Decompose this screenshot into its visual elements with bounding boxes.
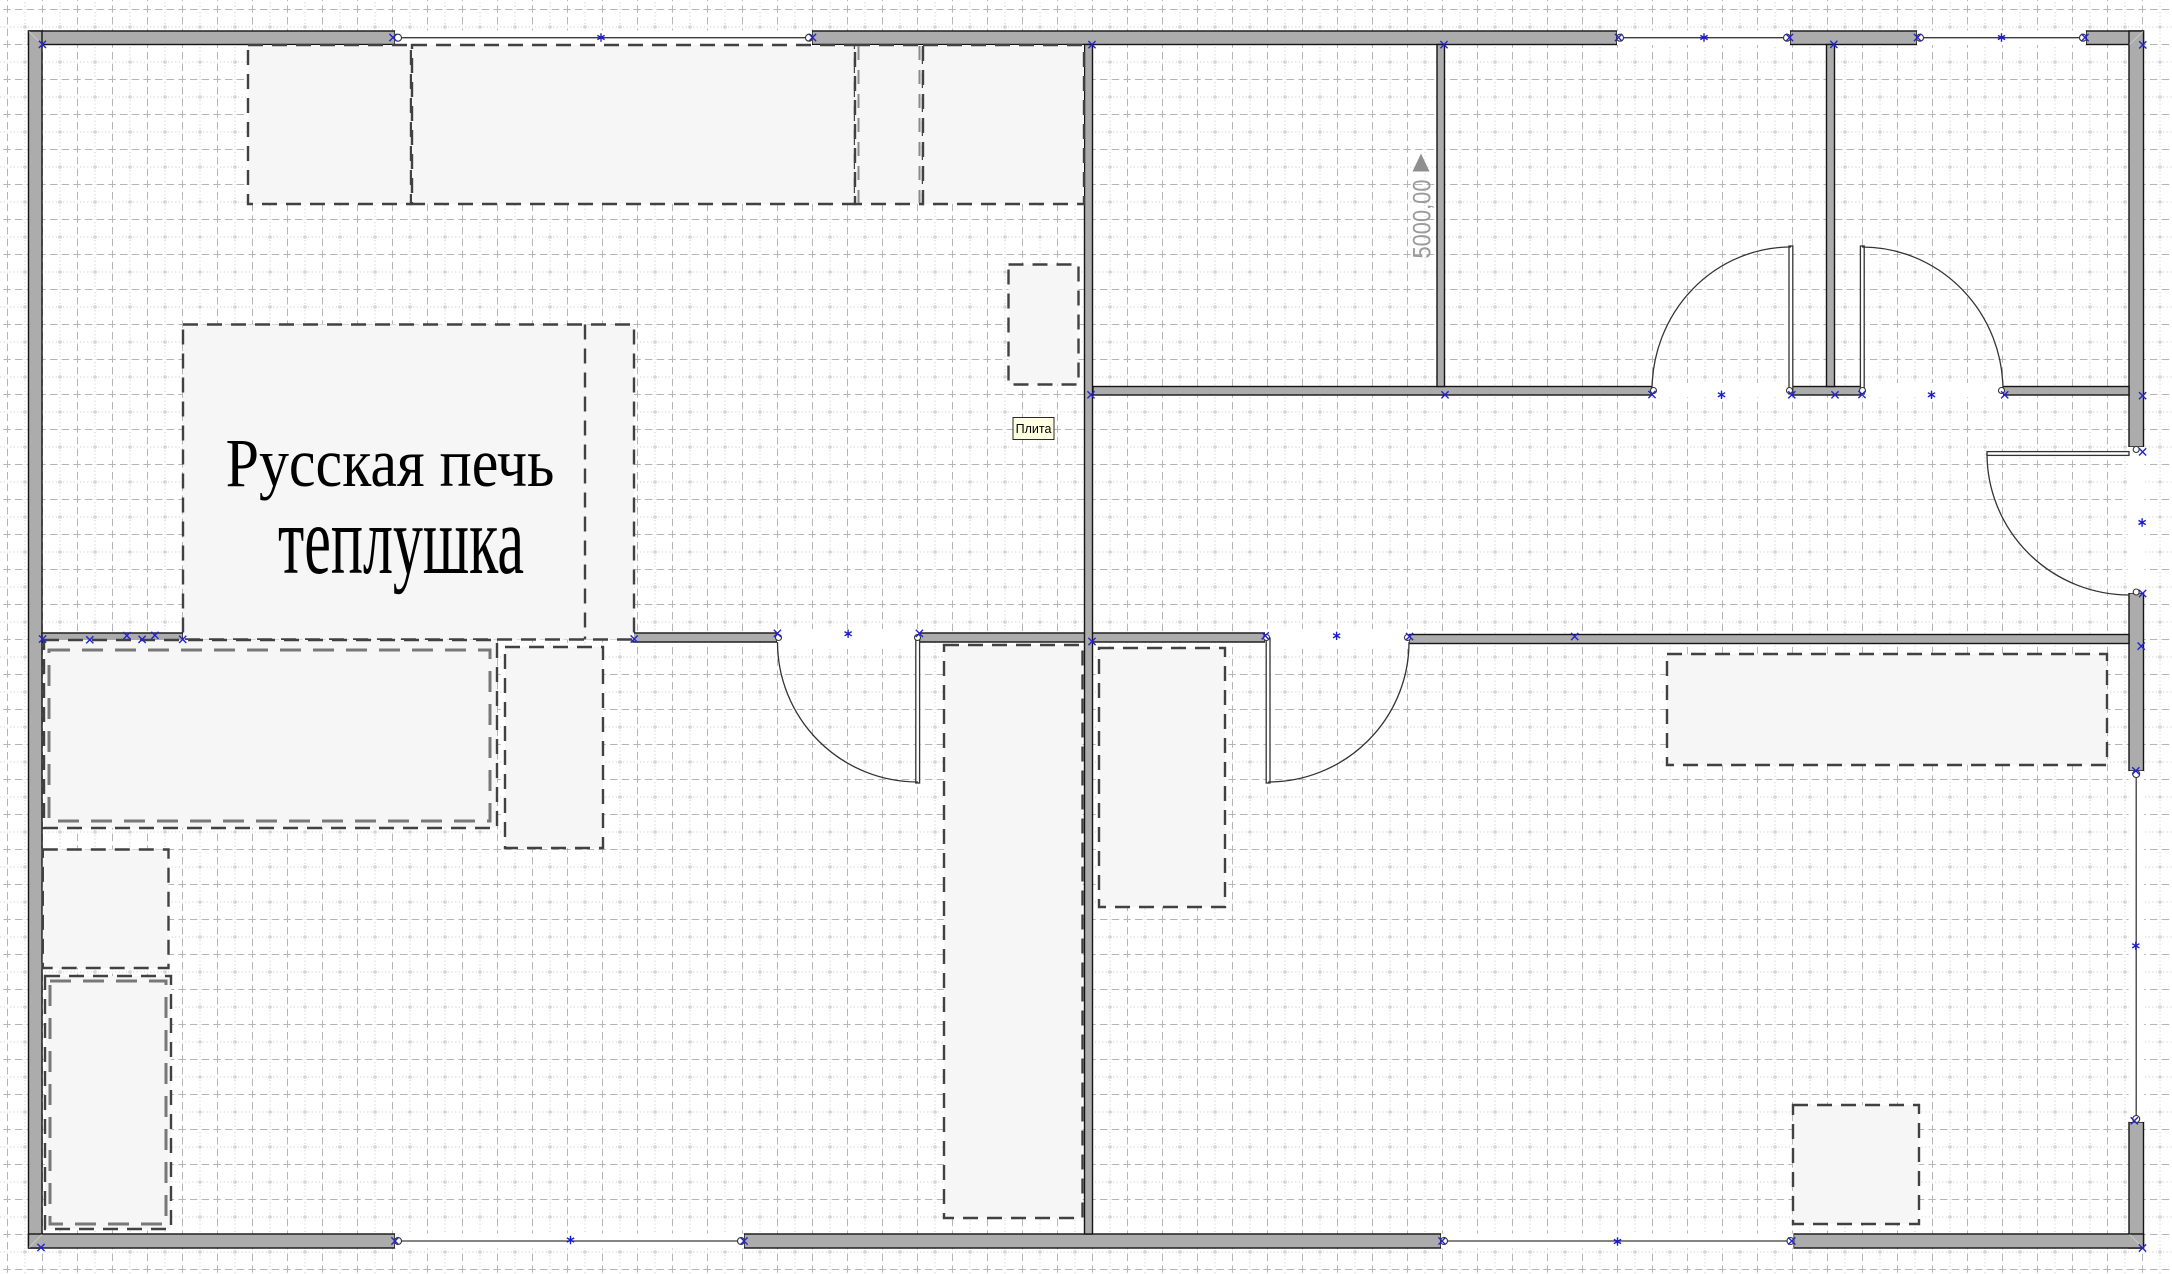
svg-text:5000,00: 5000,00	[1409, 180, 1437, 259]
svg-text:теплушка: теплушка	[278, 486, 524, 594]
svg-text:Плита: Плита	[1016, 422, 1052, 436]
